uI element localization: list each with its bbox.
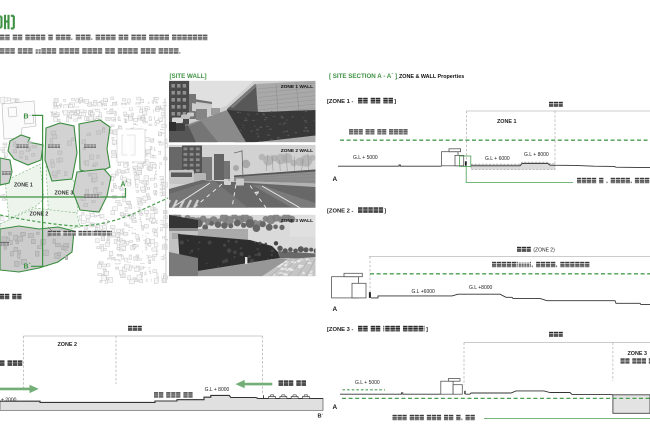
- svg-text:B`: B`: [24, 264, 31, 271]
- svg-text:G.L + 8000: G.L + 8000: [524, 152, 549, 158]
- svg-text:G.L + 8000: G.L + 8000: [205, 387, 230, 393]
- svg-text:A: A: [333, 306, 338, 313]
- svg-text:]: ]: [384, 209, 386, 215]
- svg-text:ZONE 1: ZONE 1: [497, 119, 516, 125]
- svg-text:ZONE 2: ZONE 2: [58, 342, 77, 348]
- svg-text:ZONE 2 WALL: ZONE 2 WALL: [281, 148, 313, 154]
- svg-text:]: ]: [394, 99, 396, 105]
- svg-text:G.L + 5000: G.L + 5000: [353, 155, 378, 161]
- svg-text:[ZONE 2 -: [ZONE 2 -: [327, 209, 353, 215]
- svg-text:[ SITE SECTION A - A` ]: [ SITE SECTION A - A` ]: [329, 73, 397, 80]
- svg-text:ZONE 1: ZONE 1: [14, 182, 33, 188]
- svg-text:A`: A`: [121, 182, 128, 189]
- svg-text:B`: B`: [318, 414, 324, 420]
- svg-text:ZONE 1 WALL: ZONE 1 WALL: [281, 84, 313, 90]
- svg-text:ZONE 3 WALL: ZONE 3 WALL: [281, 218, 313, 224]
- svg-text:G.L +6000: G.L +6000: [412, 289, 436, 295]
- svg-text:_ZONE & WALL Properties: _ZONE & WALL Properties: [395, 74, 464, 80]
- svg-text:[ZONE 1 -: [ZONE 1 -: [327, 99, 353, 105]
- svg-text:G.L + 5000: G.L + 5000: [355, 380, 380, 386]
- svg-text:B: B: [24, 114, 29, 121]
- svg-text:A: A: [333, 404, 338, 411]
- svg-text:A: A: [333, 176, 338, 183]
- svg-text:[SITE WALL]: [SITE WALL]: [170, 73, 207, 80]
- svg-text:G.L +8000: G.L +8000: [469, 285, 493, 291]
- svg-text:]: ]: [426, 327, 428, 333]
- svg-text:G.L + 6000: G.L + 6000: [485, 156, 510, 162]
- svg-text:(ZONE 2): (ZONE 2): [533, 248, 555, 254]
- svg-text:ZONE 3: ZONE 3: [55, 191, 74, 197]
- svg-text:ZONE 2: ZONE 2: [30, 211, 49, 217]
- svg-text:[ZONE 3 -: [ZONE 3 -: [327, 327, 353, 333]
- svg-text:ZONE 3: ZONE 3: [628, 351, 647, 357]
